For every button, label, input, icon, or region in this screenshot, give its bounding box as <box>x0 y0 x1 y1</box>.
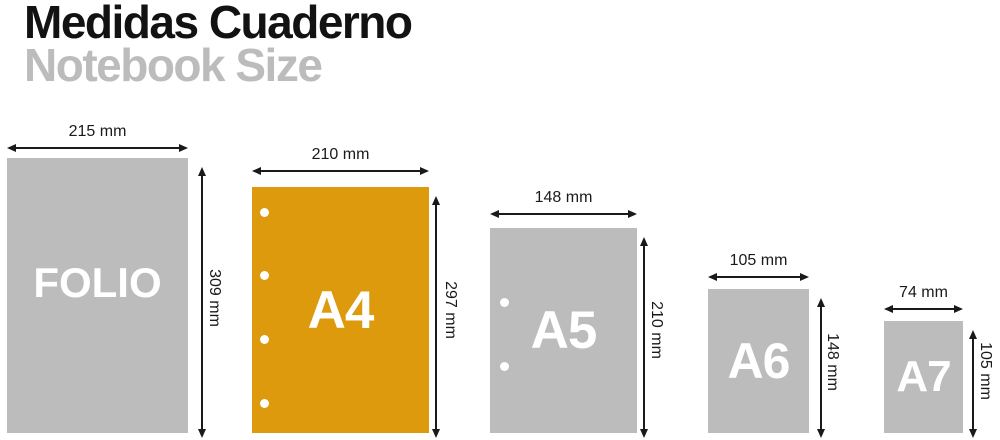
sheet-a7: A7 <box>884 321 963 433</box>
arrowhead-right-icon <box>954 305 963 313</box>
notebook-a7: 74 mm A7 105 mm <box>0 0 1000 440</box>
sheet-label: A7 <box>896 355 950 399</box>
arrowhead-down-icon <box>969 429 977 438</box>
width-dimension-arrow <box>884 305 963 314</box>
arrowhead-left-icon <box>884 305 893 313</box>
notebook-size-diagram: Medidas Cuaderno Notebook Size 215 mm FO… <box>0 0 1000 440</box>
height-dimension-label: 105 mm <box>976 326 994 416</box>
width-dimension-label: 74 mm <box>884 284 963 302</box>
